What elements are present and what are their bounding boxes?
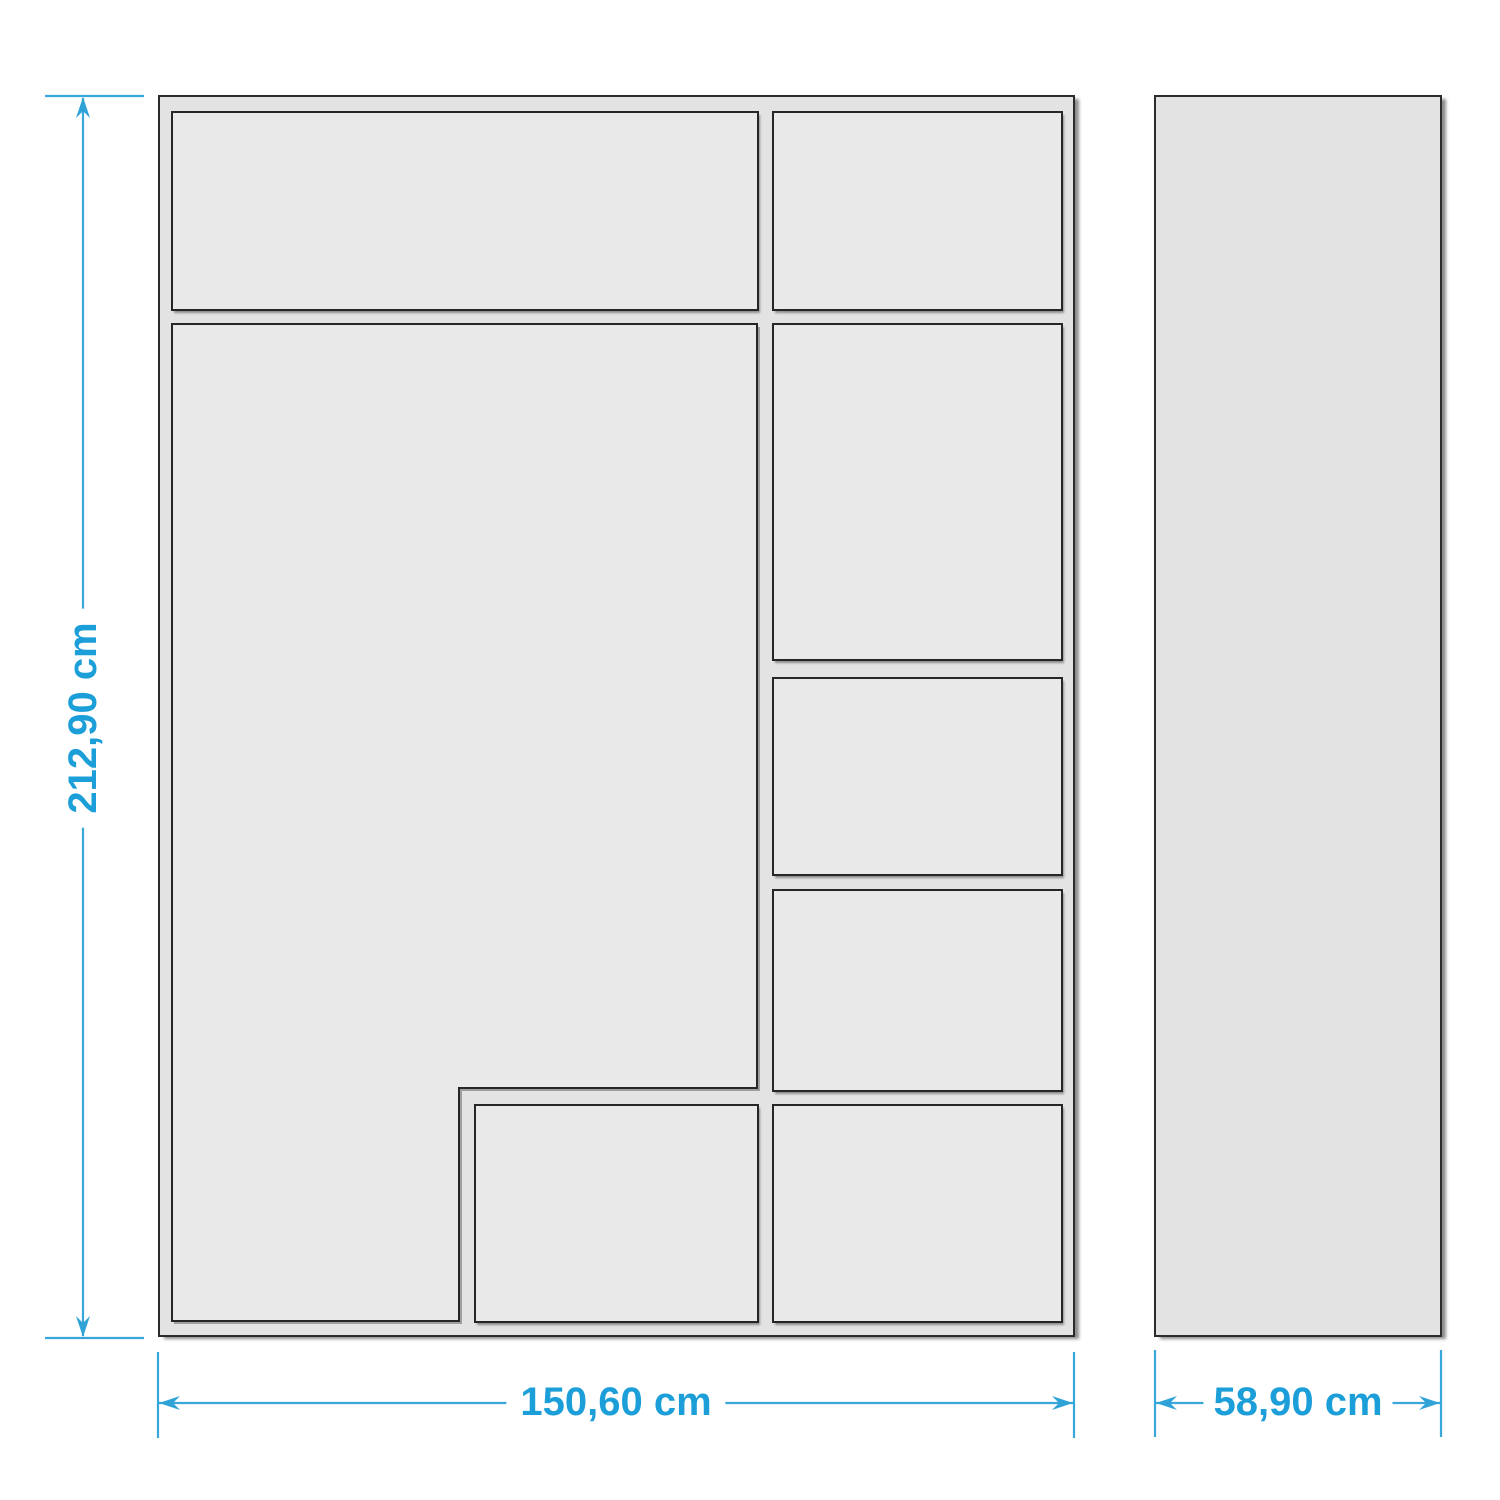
panel-top-right <box>772 111 1063 311</box>
panel-right-tall <box>772 323 1063 661</box>
panel-top-left <box>171 111 759 311</box>
arrow-left-icon <box>1156 1396 1177 1410</box>
depth-dimension-label: 58,90 cm <box>1203 1378 1392 1426</box>
furniture-dimension-diagram: 212,90 cm 150,60 cm 58,90 cm <box>0 0 1500 1500</box>
side-view-outline <box>1154 95 1442 1337</box>
panel-right-middle-upper <box>772 677 1063 876</box>
panel-bottom-middle <box>474 1104 759 1323</box>
width-dimension-label: 150,60 cm <box>506 1378 725 1426</box>
arrow-left-icon <box>159 1396 180 1410</box>
arrow-down-icon <box>76 1316 90 1337</box>
panel-right-middle-lower <box>772 889 1063 1092</box>
arrow-right-icon <box>1419 1396 1440 1410</box>
front-view-outline <box>158 95 1075 1337</box>
arrow-up-icon <box>76 97 90 118</box>
height-dimension-label: 212,90 cm <box>59 608 107 827</box>
panel-right-bottom <box>772 1104 1063 1323</box>
arrow-right-icon <box>1052 1396 1073 1410</box>
